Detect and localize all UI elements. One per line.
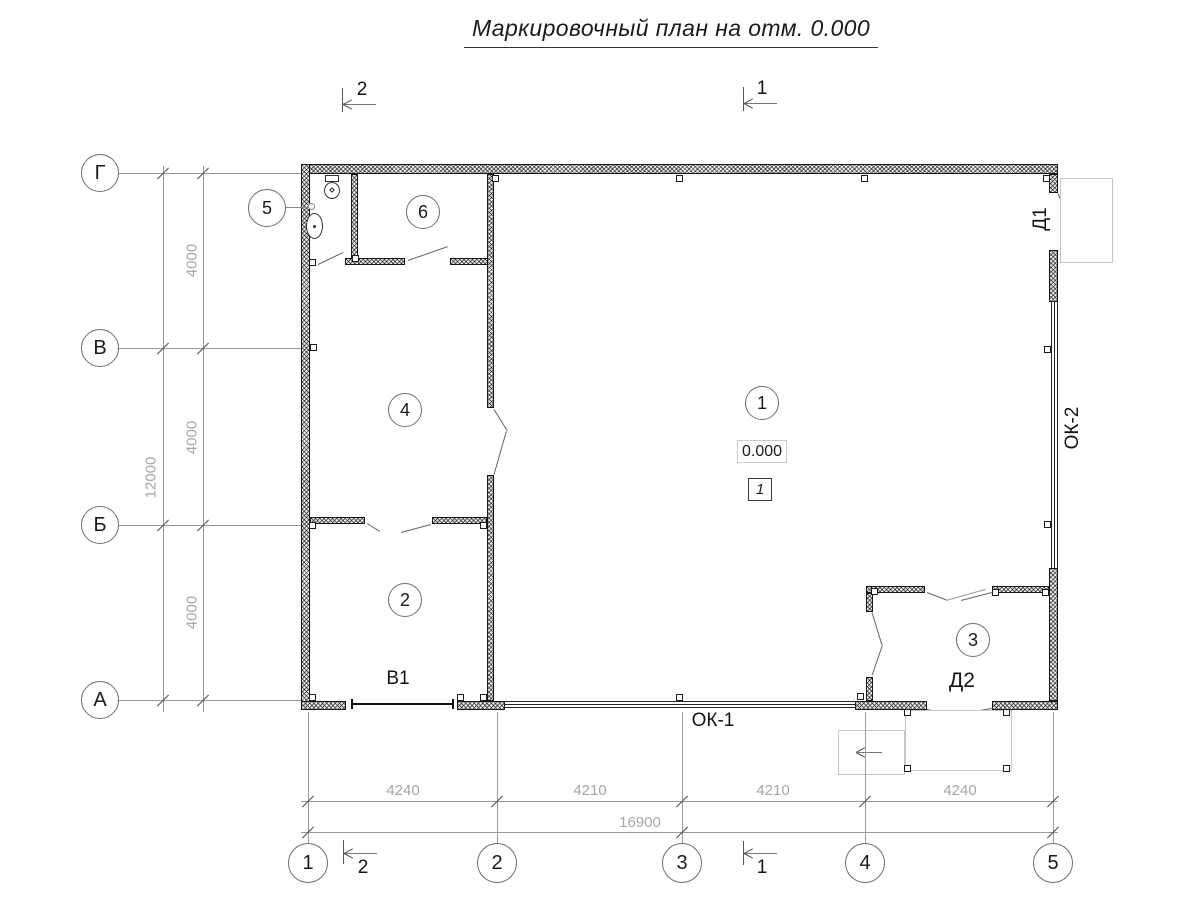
axis-bubble-1: 1 (288, 843, 328, 883)
dim-left-segment-2: 4000 (184, 408, 201, 468)
dim-bottom-total: 16900 (605, 814, 675, 831)
room-number-3: 3 (968, 630, 978, 651)
wall-end-marker (457, 694, 464, 701)
axis-line-a (119, 700, 301, 701)
room-number-2: 2 (400, 590, 410, 611)
room-bubble-6: 6 (406, 195, 440, 229)
section-2-bottom-label: 2 (353, 857, 373, 879)
dim-left-segment-3: 4000 (184, 583, 201, 643)
page-title: Маркировочный план на отм. 0.000 (464, 15, 878, 48)
door-leaf-room2-b (401, 524, 431, 533)
column-marker (676, 175, 683, 182)
window-ok2-label: ОК-2 (1062, 398, 1084, 458)
axis-bubble-4: 4 (845, 843, 885, 883)
gate-b1-line (352, 703, 453, 705)
door-leaf-room4-a (494, 409, 508, 431)
room-bubble-4: 4 (388, 393, 422, 427)
wall-bottom-1 (301, 701, 346, 710)
column-marker (861, 175, 868, 182)
floor-plan-sheet: Маркировочный план на отм. 0.000 2 1 Г В… (0, 0, 1200, 900)
axis-bubble-b: Б (81, 506, 119, 544)
window-ok2-band (1051, 302, 1058, 568)
floor-type-value: 1 (756, 481, 764, 498)
room-number-5: 5 (262, 198, 272, 219)
toilet-tank-icon (325, 175, 339, 182)
axis-bubble-5: 5 (1033, 843, 1073, 883)
window-mullion-marker (676, 694, 683, 701)
wall-end-marker (352, 255, 359, 262)
wall-vestibule-north-2 (992, 586, 1049, 593)
section-1-top-label: 1 (752, 78, 772, 100)
section-1-bottom-label: 1 (752, 857, 772, 879)
gate-b1-end-tick (452, 699, 454, 709)
window-mullion-marker (1044, 346, 1051, 353)
wall-room4-east-upper (487, 174, 494, 408)
axis-bubble-3: 3 (662, 843, 702, 883)
room5-leader-dot (308, 203, 315, 210)
door-leaf-room6 (408, 246, 448, 261)
room-bubble-5: 5 (248, 189, 286, 227)
wall-right-2 (1049, 250, 1058, 302)
wall-right-1 (1049, 174, 1058, 193)
porch-post-marker (904, 765, 911, 772)
room-bubble-2: 2 (388, 583, 422, 617)
axis-label-b: Б (93, 514, 106, 537)
axis-label-3: 3 (676, 852, 687, 875)
axis-label-v: В (93, 337, 106, 360)
window-ok1-label: ОК-1 (683, 710, 743, 732)
room-bubble-3: 3 (956, 623, 990, 657)
axis-label-4: 4 (859, 852, 870, 875)
column-marker (310, 344, 317, 351)
dim-bottom-segment-3: 4210 (743, 782, 803, 799)
porch-post-marker (1003, 709, 1010, 716)
wall-right-3 (1049, 568, 1058, 701)
room-number-4: 4 (400, 400, 410, 421)
wall-vestibule-pier-top (866, 593, 873, 612)
porch-post-marker (904, 709, 911, 716)
wall-axis-b-1 (310, 517, 365, 524)
gate-b1-end-tick (351, 699, 353, 709)
axis-bubble-v: В (81, 329, 119, 367)
entrance-porch (905, 710, 1012, 771)
wall-left (301, 164, 310, 710)
axis-line-g (119, 173, 301, 174)
wall-end-marker (309, 522, 316, 529)
sink-drain-icon (313, 225, 316, 228)
axis-label-5: 5 (1047, 852, 1058, 875)
dim-bottom-segment-2: 4210 (560, 782, 620, 799)
column-marker (1043, 175, 1050, 182)
floor-type-mark: 1 (748, 478, 772, 501)
section-1-top-arrow-line (743, 103, 777, 104)
axis-label-g: Г (95, 162, 106, 185)
door-d1-label: Д1 (1030, 194, 1052, 244)
wall-end-marker (1042, 589, 1049, 596)
porch-post-marker (1003, 765, 1010, 772)
axis-ext-1 (308, 712, 309, 843)
dim-line-left-segments (203, 166, 204, 712)
wall-end-marker (480, 694, 487, 701)
axis-bubble-g: Г (81, 154, 119, 192)
wall-bottom-2 (457, 701, 505, 710)
wall-end-marker (309, 259, 316, 266)
door-leaf-vestibule-north-a (927, 592, 947, 600)
gate-b1-label: В1 (378, 668, 418, 690)
section-2-top-arrow-line (342, 104, 376, 105)
wall-end-marker (309, 694, 316, 701)
axis-label-2: 2 (491, 852, 502, 875)
window-ok1-band (505, 701, 855, 708)
room5-leader-line (286, 207, 308, 208)
axis-label-a: А (93, 689, 106, 712)
axis-label-1: 1 (302, 852, 313, 875)
entry-arrow-line (858, 752, 882, 753)
column-marker (492, 175, 499, 182)
wall-vestibule-pier-bottom (866, 677, 873, 701)
axis-bubble-a: А (81, 681, 119, 719)
section-2-top-label: 2 (352, 79, 372, 101)
room-number-1: 1 (757, 393, 767, 414)
dim-bottom-segment-1: 4240 (373, 782, 433, 799)
wall-end-marker (992, 589, 999, 596)
wall-room4-east-lower (487, 475, 494, 701)
section-1-top-line (743, 87, 744, 111)
axis-ext-2 (497, 712, 498, 843)
axis-ext-5 (1053, 712, 1054, 843)
axis-line-b (119, 525, 310, 526)
wall-bottom-4 (992, 701, 1058, 710)
axis-ext-4 (865, 712, 866, 843)
window-mullion-marker (1044, 521, 1051, 528)
dim-left-total: 12000 (143, 443, 160, 513)
door-leaf-vestibule-west-a (872, 612, 883, 646)
door-leaf-wc (318, 252, 344, 265)
wall-end-marker (480, 522, 487, 529)
dim-left-segment-1: 4000 (184, 231, 201, 291)
door-d2-label: Д2 (940, 669, 984, 693)
elevation-mark: 0.000 (737, 440, 787, 463)
wall-bottom-3 (855, 701, 927, 710)
axis-line-v (119, 348, 301, 349)
wall-top (301, 164, 1058, 174)
axis-ext-3 (682, 712, 683, 843)
door-leaf-room4-b (494, 431, 507, 475)
elevation-value: 0.000 (742, 443, 782, 461)
section-2-bottom-arrow-line (343, 853, 377, 854)
wall-axis-b-2 (432, 517, 487, 524)
wall-end-marker (857, 693, 864, 700)
door-leaf-vestibule-west-b (872, 646, 883, 676)
wall-end-marker (871, 588, 878, 595)
room-number-6: 6 (418, 202, 428, 223)
door-leaf-room2-a (367, 523, 380, 532)
axis-bubble-2: 2 (477, 843, 517, 883)
entrance-landing-d1 (1060, 178, 1113, 263)
section-2-top-line (342, 88, 343, 112)
dim-bottom-segment-4: 4240 (930, 782, 990, 799)
section-1-bottom-arrow-line (743, 853, 777, 854)
wall-wc-east (351, 174, 358, 262)
dim-line-left-total (163, 166, 164, 712)
room-bubble-1: 1 (745, 386, 779, 420)
